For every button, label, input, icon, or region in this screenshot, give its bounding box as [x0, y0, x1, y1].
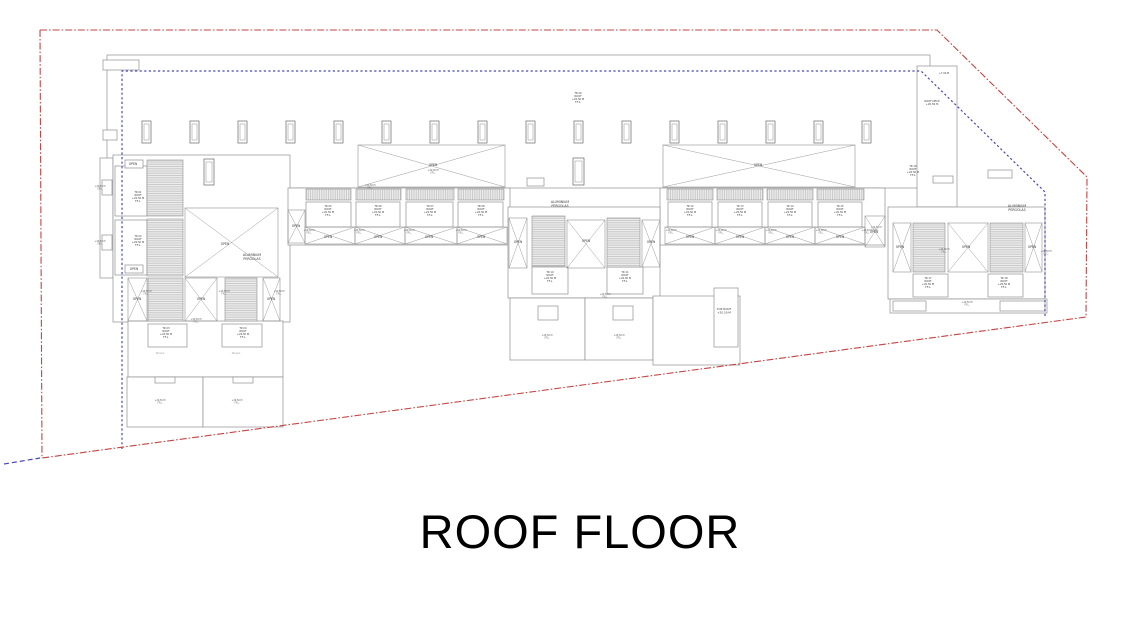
open-label: OPEN: [786, 235, 795, 239]
open-label: OPEN: [836, 235, 845, 239]
pergola-hatch: [717, 189, 763, 200]
setback-line-extension: [4, 458, 40, 464]
open-label: OPEN: [324, 235, 333, 239]
plan-label-pergolas: ALUMINIUMPERGOLAS: [1008, 204, 1026, 212]
building-block: [933, 176, 953, 183]
building-block: [538, 306, 558, 320]
stair-hatch: [532, 216, 565, 266]
roof-vent: [430, 121, 439, 143]
open-label: OPEN: [686, 235, 695, 239]
open-label: OPEN: [962, 245, 971, 249]
roof-vent: [766, 121, 775, 143]
building-block: [100, 158, 113, 278]
plan-label-roof_deck: ROOF DECK+20.50 M: [924, 99, 940, 106]
open-label: OPEN: [267, 297, 276, 301]
open-label: OPEN: [374, 235, 383, 239]
pergola-hatch: [458, 189, 504, 200]
drawing-sheet: OPENOPENOPENOPENOPENOPENOPENOPENOPENOPEN…: [0, 0, 1122, 638]
roof-vent: [204, 159, 214, 185]
page-title: ROOF FLOOR: [19, 504, 1122, 559]
open-label: OPEN: [647, 240, 656, 244]
open-label: OPEN: [133, 297, 142, 301]
roof-vent: [142, 121, 151, 143]
open-label: OPEN: [130, 267, 139, 271]
building-block: [714, 288, 738, 347]
building-block: [527, 178, 544, 186]
open-label: OPEN: [736, 235, 745, 239]
open-label: OPEN: [129, 162, 138, 166]
open-label: OPEN: [292, 224, 301, 228]
building-block: [893, 301, 926, 311]
building-block: [233, 377, 253, 383]
roof-vent: [718, 121, 727, 143]
roof-vent: [526, 121, 535, 143]
roof-vent: [382, 121, 391, 143]
roof-vent: [334, 121, 343, 143]
open-label: OPEN: [582, 239, 591, 243]
building-block: [127, 377, 203, 427]
stair-hatch: [990, 223, 1023, 272]
open-label: OPEN: [197, 297, 206, 301]
building-block: [103, 130, 117, 140]
building-block: [1000, 301, 1045, 311]
plan-label-pergolas: ALUMINIUMPERGOLAS: [243, 253, 261, 261]
pergola-hatch: [406, 189, 454, 200]
building-block: [115, 166, 147, 216]
building-block: [988, 170, 1012, 178]
roof-vent: [670, 121, 679, 143]
open-label: OPEN: [429, 163, 438, 167]
roof-vent: [574, 121, 583, 143]
plan-label-terrace: Terrace: [232, 352, 241, 355]
building-block: [203, 377, 283, 427]
stair-hatch: [225, 278, 257, 321]
open-label: OPEN: [896, 245, 905, 249]
stair-hatch: [148, 278, 183, 321]
stair-hatch: [147, 160, 183, 216]
open-label: OPEN: [425, 235, 434, 239]
building-block: [155, 377, 175, 383]
roof-vent: [478, 121, 487, 143]
roof-vent: [622, 121, 631, 143]
roof-vent: [190, 121, 199, 143]
pergola-hatch: [667, 189, 713, 200]
plan-label-top_roof: TOP ROOF+20.50 M: [716, 307, 732, 314]
roof-vent: [862, 121, 871, 143]
roof-vent: [814, 121, 823, 143]
pergola-hatch: [817, 189, 864, 200]
roof-vent: [238, 121, 247, 143]
plan-label-pergolas: ALUMINIUMPERGOLAS: [551, 200, 569, 208]
pergola-hatch: [356, 189, 401, 200]
open-label: OPEN: [221, 242, 230, 246]
stair-hatch: [607, 218, 640, 267]
building-block: [103, 60, 139, 70]
roof-vent: [573, 158, 584, 185]
plan-label-tos: +7.00 M: [939, 72, 949, 75]
open-label: OPEN: [754, 163, 763, 167]
building-block: [917, 66, 957, 207]
open-label: OPEN: [514, 240, 523, 244]
roof-vent: [286, 121, 295, 143]
plan-label-terrace: Terrace: [156, 352, 165, 355]
open-label: OPEN: [1028, 245, 1037, 249]
pergola-hatch: [767, 189, 813, 200]
stair-hatch: [147, 219, 183, 276]
building-block: [613, 306, 633, 320]
pergola-hatch: [306, 189, 351, 200]
open-label: OPEN: [477, 235, 486, 239]
